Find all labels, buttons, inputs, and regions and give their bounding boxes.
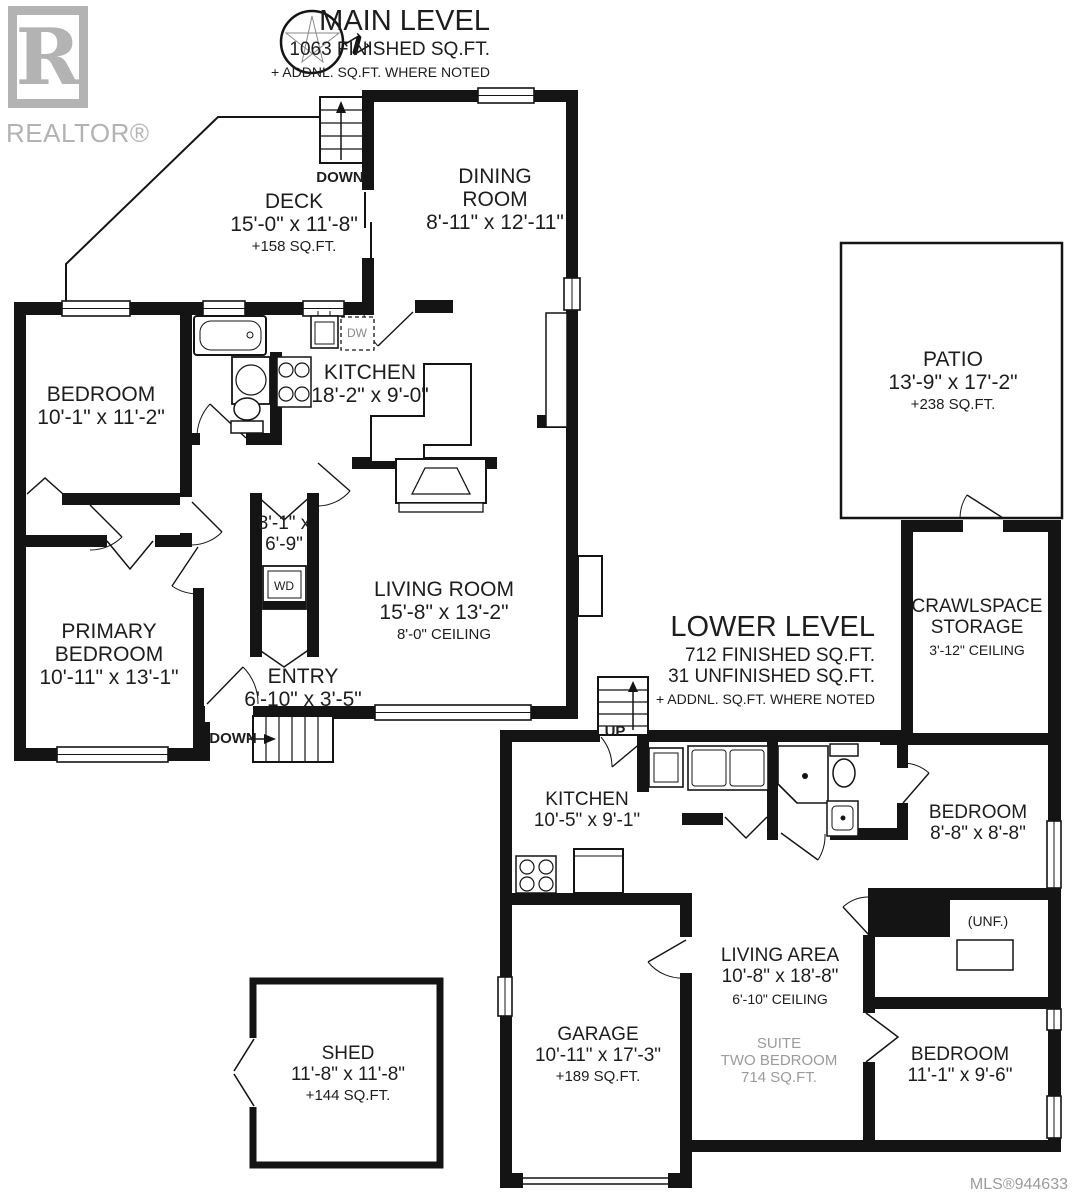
- stairs-entry-down-label: DOWN: [209, 731, 257, 747]
- crawlspace-label: CRAWLSPACE STORAGE 3'-12" CEILING: [912, 596, 1043, 659]
- floor-plan-page: N R REALTOR® MLS®944633 MAIN LEVEL 1063 …: [0, 0, 1076, 1199]
- dishwasher-label: DW: [347, 327, 367, 340]
- garage-door: [523, 1178, 668, 1184]
- lower-level-area: 712 FINISHED SQ.FT.: [656, 645, 875, 666]
- chimney-bump: [578, 556, 602, 616]
- suite-note-label: SUITE TWO BEDROOM 714 SQ.FT.: [721, 1035, 838, 1086]
- washer-dryer-icon: [688, 746, 768, 790]
- pantry-cabinet: [546, 313, 567, 427]
- dining-room-label: DINING ROOM 8'-11" x 12'-11": [426, 165, 564, 234]
- laundry-closet-label: 3'-1" x 6'-9": [258, 513, 311, 555]
- realtor-logo-letter: R: [16, 12, 81, 103]
- deck-label: DECK 15'-0" x 11'-8" +158 SQ.FT.: [230, 190, 358, 255]
- shed-label: SHED 11'-8" x 11'-8" +144 SQ.FT.: [291, 1043, 405, 1104]
- realtor-logo: R: [8, 6, 88, 108]
- shower-icon: [778, 746, 828, 803]
- main-level-area: 1063 FINISHED SQ.FT.: [271, 39, 490, 60]
- fireplace-icon: [396, 459, 486, 512]
- living-area-label: LIVING AREA 10'-8" x 18'-8" 6'-10" CEILI…: [721, 945, 839, 1008]
- lower-level-title: LOWER LEVEL: [656, 612, 875, 643]
- realtor-wordmark: REALTOR®: [6, 118, 150, 149]
- kitchen-sink-icon: [311, 311, 338, 348]
- kitchen-label: KITCHEN 18'-2" x 9'-0": [311, 361, 428, 407]
- lower-toilet-icon: [830, 744, 858, 787]
- lower-vanity-icon: [827, 801, 858, 836]
- stairs-up-label: UP: [605, 724, 626, 740]
- fridge-icon: [574, 849, 623, 893]
- unfinished-storage-box: [957, 940, 1013, 970]
- stairs-top-down: [320, 97, 363, 163]
- garage-label: GARAGE 10'-11" x 17'-3" +189 SQ.FT.: [535, 1024, 661, 1085]
- stove-icon: [277, 357, 311, 407]
- entry-label: ENTRY 6'-10" x 3'-5": [244, 665, 361, 711]
- washer-dryer-label: WD: [274, 580, 294, 593]
- mls-number: MLS®944633: [970, 1176, 1068, 1194]
- main-level-title: MAIN LEVEL: [271, 6, 490, 37]
- lower-bedroom-two-label: BEDROOM 11'-1" x 9'-6": [908, 1044, 1013, 1086]
- main-level-note: + ADDNL. SQ.FT. WHERE NOTED: [271, 64, 490, 81]
- lower-level-area2: 31 UNFINISHED SQ.FT.: [656, 666, 875, 687]
- bedroom-label: BEDROOM 10'-1" x 11'-2": [37, 383, 165, 429]
- primary-bedroom-label: PRIMARY BEDROOM 10'-11" x 13'-1": [39, 620, 178, 689]
- vanity-sink-icon: [232, 357, 270, 404]
- lower-bedroom-one-label: BEDROOM 8'-8" x 8'-8": [929, 802, 1027, 844]
- stairs-top-down-label: DOWN: [316, 170, 364, 186]
- stairs-entry-down: [248, 716, 333, 762]
- lower-stove-icon: [516, 856, 556, 893]
- lower-kitchen-label: KITCHEN 10'-5" x 9'-1": [534, 789, 640, 831]
- unfinished-label: (UNF.): [968, 913, 1008, 930]
- living-room-label: LIVING ROOM 15'-8" x 13'-2" 8'-0" CEILIN…: [374, 578, 514, 643]
- lower-level-title-block: LOWER LEVEL 712 FINISHED SQ.FT. 31 UNFIN…: [656, 612, 875, 708]
- shed-double-door: [234, 1039, 254, 1106]
- deck-slider-door: [365, 192, 371, 258]
- toilet-icon: [231, 398, 263, 433]
- patio-label: PATIO 13'-9" x 17'-2" +238 SQ.FT.: [888, 348, 1017, 413]
- main-level-title-block: MAIN LEVEL 1063 FINISHED SQ.FT. + ADDNL.…: [271, 6, 490, 81]
- bathtub-icon: [194, 316, 266, 355]
- laundry-sink-icon: [649, 748, 683, 787]
- lower-level-note: + ADDNL. SQ.FT. WHERE NOTED: [656, 691, 875, 708]
